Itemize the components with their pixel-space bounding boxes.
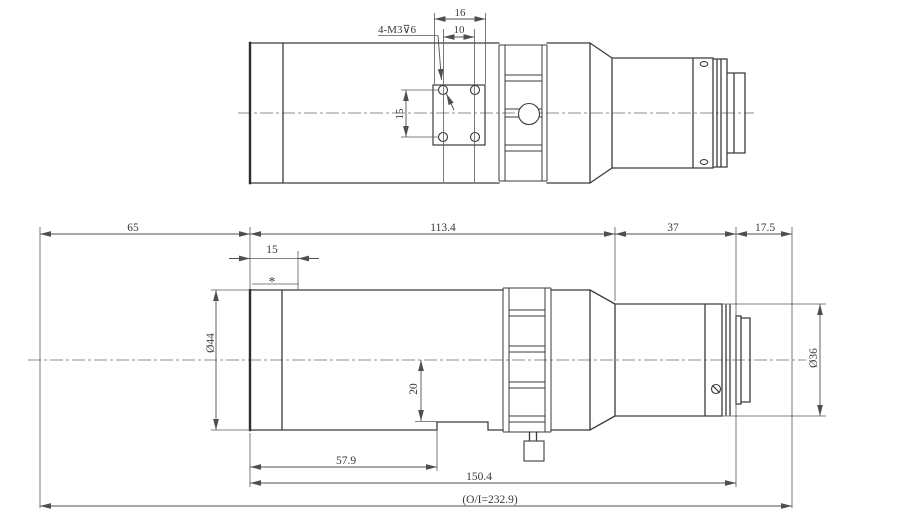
side-view: 65 113.4 37 17.5 15 * Ø44 20 Ø36 57.9 15…	[28, 222, 826, 508]
dim-front-section-label: 113.4	[430, 222, 456, 234]
side-view-dimensions: 65 113.4 37 17.5 15 * Ø44 20 Ø36 57.9 15…	[40, 222, 826, 508]
dim-hole-spacing-v-label: 15	[394, 108, 406, 120]
flange-slot-hole-bottom	[700, 160, 708, 165]
mounting-plate	[433, 85, 485, 145]
top-view-dimensions: 16 10 4-M3⊽6 15	[378, 7, 486, 182]
plate-hole	[471, 86, 480, 95]
dim-front-ring-label: 15	[266, 244, 278, 256]
dim-hole-spacing-h-label: 10	[454, 24, 466, 36]
top-view: 16 10 4-M3⊽6 15	[238, 7, 754, 183]
dim-object-to-front-label: 65	[127, 222, 139, 234]
dim-front-to-flange-label: 150.4	[466, 471, 492, 483]
plate-hole	[439, 86, 448, 95]
flange-slot-hole-top	[700, 62, 708, 67]
dim-plate-width-label: 16	[455, 7, 467, 19]
plate-hole	[471, 133, 480, 142]
dim-rear-diameter-label: Ø36	[808, 348, 820, 368]
dim-front-diameter-label: Ø44	[205, 333, 217, 353]
dim-flange-to-image-label: 17.5	[755, 222, 775, 234]
drawing-canvas: 16 10 4-M3⊽6 15	[0, 0, 904, 515]
thumbscrew	[524, 432, 544, 461]
dim-total-track-label: (O/I=232.9)	[462, 494, 518, 506]
flange-set-screw	[712, 385, 721, 394]
thumbscrew-knob	[524, 441, 544, 461]
front-ring-note: *	[269, 275, 276, 290]
dim-front-to-slot-label: 57.9	[336, 455, 356, 467]
zoom-ring-screw	[519, 104, 540, 125]
dim-axis-to-flat-label: 20	[408, 383, 420, 395]
lens-engineering-drawing: 16 10 4-M3⊽6 15	[0, 0, 904, 515]
dim-rear-section-label: 37	[667, 222, 679, 234]
plate-hole	[439, 133, 448, 142]
thread-callout-label: 4-M3⊽6	[378, 24, 416, 36]
thread-leader-line	[438, 36, 442, 81]
thread-leader-line-inner	[447, 94, 455, 110]
